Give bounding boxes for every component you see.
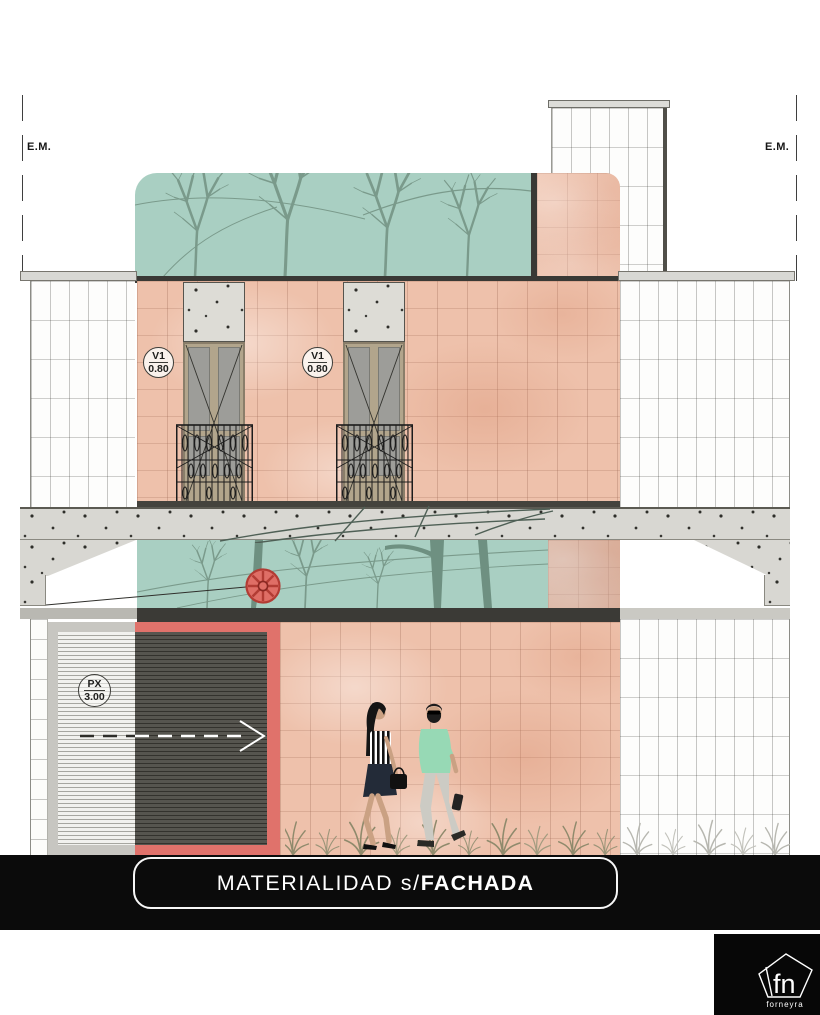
handbag (390, 774, 407, 789)
em-label-right: E.M. (765, 141, 789, 153)
brick-pier-mid (548, 540, 620, 608)
tag-code: PX (84, 678, 104, 691)
tag-dimension: 0.80 (307, 363, 327, 375)
property-line-left (22, 95, 23, 285)
window-tag-2: V1 0.80 (302, 347, 333, 378)
tile-pier-left (30, 619, 48, 855)
side-wall-right-upper (620, 281, 790, 507)
lintel-band-right (620, 608, 790, 619)
direction-arrow-icon (80, 716, 270, 756)
pedestrian-woman (363, 702, 407, 850)
tree-silhouette-upper (135, 173, 531, 277)
parapet-cap-right (618, 271, 795, 281)
vent-wheel-icon (244, 567, 282, 605)
chimney-cap (548, 100, 670, 108)
lintel-band-dark (137, 608, 620, 622)
iron-railing-1 (176, 424, 253, 505)
tag-code: V1 (308, 350, 327, 363)
tag-dimension: 3.00 (84, 691, 104, 703)
iron-railing-2 (336, 424, 413, 505)
tag-code: V1 (149, 350, 168, 363)
title-bold-part: FACHADA (421, 871, 535, 896)
concrete-haunch-right (694, 540, 790, 576)
upper-brick-volume (537, 173, 620, 277)
logo-patch: fn forneyra (714, 934, 820, 1015)
branches-over-slab (215, 503, 555, 543)
window-2-concrete-panel (343, 282, 405, 342)
side-wall-left-upper (30, 281, 135, 507)
lintel-band-left (20, 608, 137, 619)
garage-door-tag: PX 3.00 (78, 674, 111, 707)
concrete-haunch-left (20, 540, 136, 576)
window-1-concrete-panel (183, 282, 245, 342)
pedestrians (348, 698, 478, 858)
tag-dimension: 0.80 (148, 363, 168, 375)
tree-trunks (251, 540, 492, 608)
concrete-block-left (20, 575, 46, 606)
elevation-sheet: E.M. E.M. (0, 0, 820, 1015)
title-box: MATERIALIDAD s/FACHADA (133, 857, 618, 909)
logo-monogram: fn (773, 969, 796, 999)
window-tag-1: V1 0.80 (143, 347, 174, 378)
upper-tree-glass-panel (135, 173, 531, 277)
em-label-left: E.M. (27, 141, 51, 153)
logo-studio-name: forneyra (766, 1000, 803, 1009)
property-line-right (796, 95, 797, 285)
studio-logo: fn forneyra (714, 934, 820, 1015)
sunglasses (428, 711, 441, 715)
title-light-part: MATERIALIDAD s/ (217, 871, 421, 896)
parapet-cap-left (20, 271, 137, 281)
carried-item (451, 793, 463, 811)
concrete-block-right (764, 575, 790, 606)
tension-cable-line (46, 581, 248, 607)
pedestrian-man (417, 704, 466, 847)
